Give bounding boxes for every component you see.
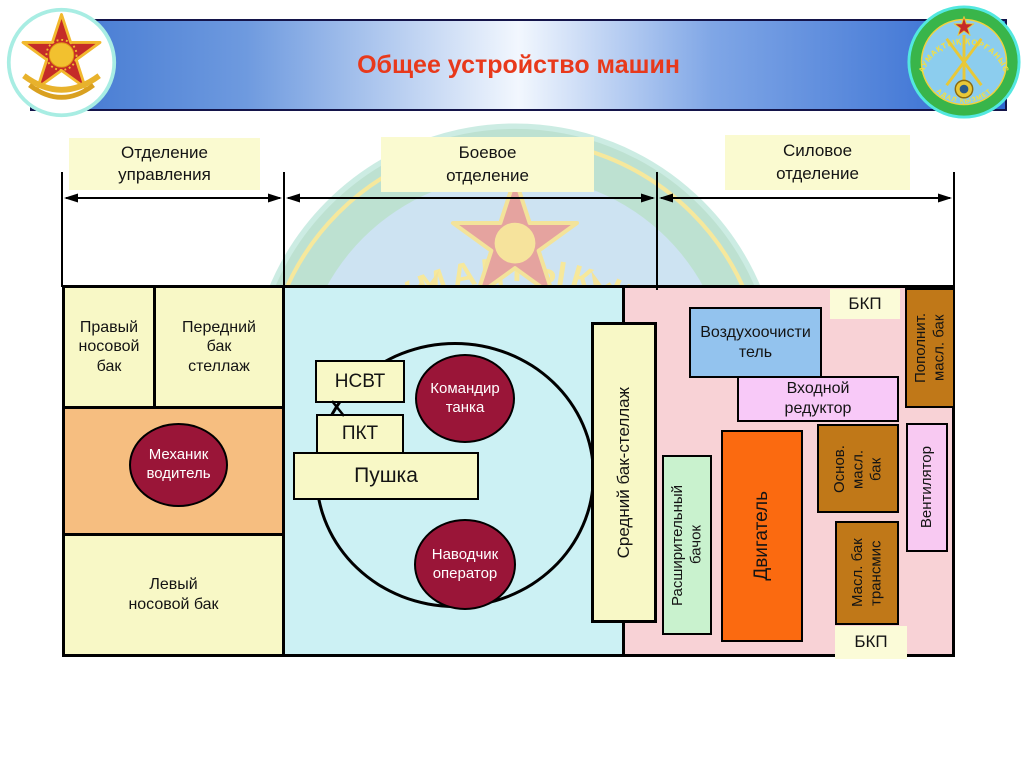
watermark-sun-icon bbox=[495, 223, 536, 264]
engine-box: Двигатель bbox=[721, 430, 803, 642]
gunner-circle: Наводчик оператор bbox=[414, 519, 516, 610]
expansion-tank-box: Расширительный бачок bbox=[662, 455, 712, 635]
right-bow-tank-box: Правый носовой бак bbox=[62, 285, 156, 409]
middle-tank-rack-box: Средний бак-стеллаж bbox=[591, 322, 657, 623]
left-bow-tank-box: Левый носовой бак bbox=[62, 533, 285, 657]
bkp-bottom-box: БКП bbox=[835, 626, 907, 659]
combat-compartment-label: Боевое отделение bbox=[381, 137, 594, 192]
driver-circle: Механик водитель bbox=[129, 423, 228, 507]
bkp-top-box: БКП bbox=[830, 289, 900, 319]
refill-oil-tank-box: Пополнит. масл. бак bbox=[905, 288, 955, 408]
slide: СЫНЫҢ АУМАҚТЫҚ ҚОРҒАНЫС Общее устройство… bbox=[0, 0, 1024, 768]
fan-box: Вентилятор bbox=[906, 423, 948, 552]
main-oil-tank-box: Основ. масл. бак bbox=[817, 424, 899, 513]
gun-box: Пушка bbox=[293, 452, 479, 500]
page-title: Общее устройство машин bbox=[357, 51, 680, 80]
military-star-emblem-icon bbox=[5, 6, 118, 119]
control-compartment-label: Отделение управления bbox=[69, 138, 260, 190]
brigade-round-emblem-icon: АУМАҚТЫҚ ҚОРҒАНЫС АДАЛ ҚЫЗМЕТ bbox=[906, 4, 1022, 120]
trans-oil-tank-box: Масл. бак трансмис bbox=[835, 521, 899, 625]
front-tank-rack-box: Передний бак стеллаж bbox=[153, 285, 285, 409]
power-compartment-label: Силовое отделение bbox=[725, 135, 910, 190]
air-cleaner-box: Воздухоочиститель bbox=[689, 307, 822, 378]
nsvt-box: НСВТ bbox=[315, 360, 405, 403]
commander-circle: Командир танка bbox=[415, 354, 515, 443]
pkt-box: ПКТ bbox=[316, 414, 404, 454]
title-banner: Общее устройство машин bbox=[30, 19, 1007, 111]
input-reducer-box: Входной редуктор bbox=[737, 376, 899, 422]
